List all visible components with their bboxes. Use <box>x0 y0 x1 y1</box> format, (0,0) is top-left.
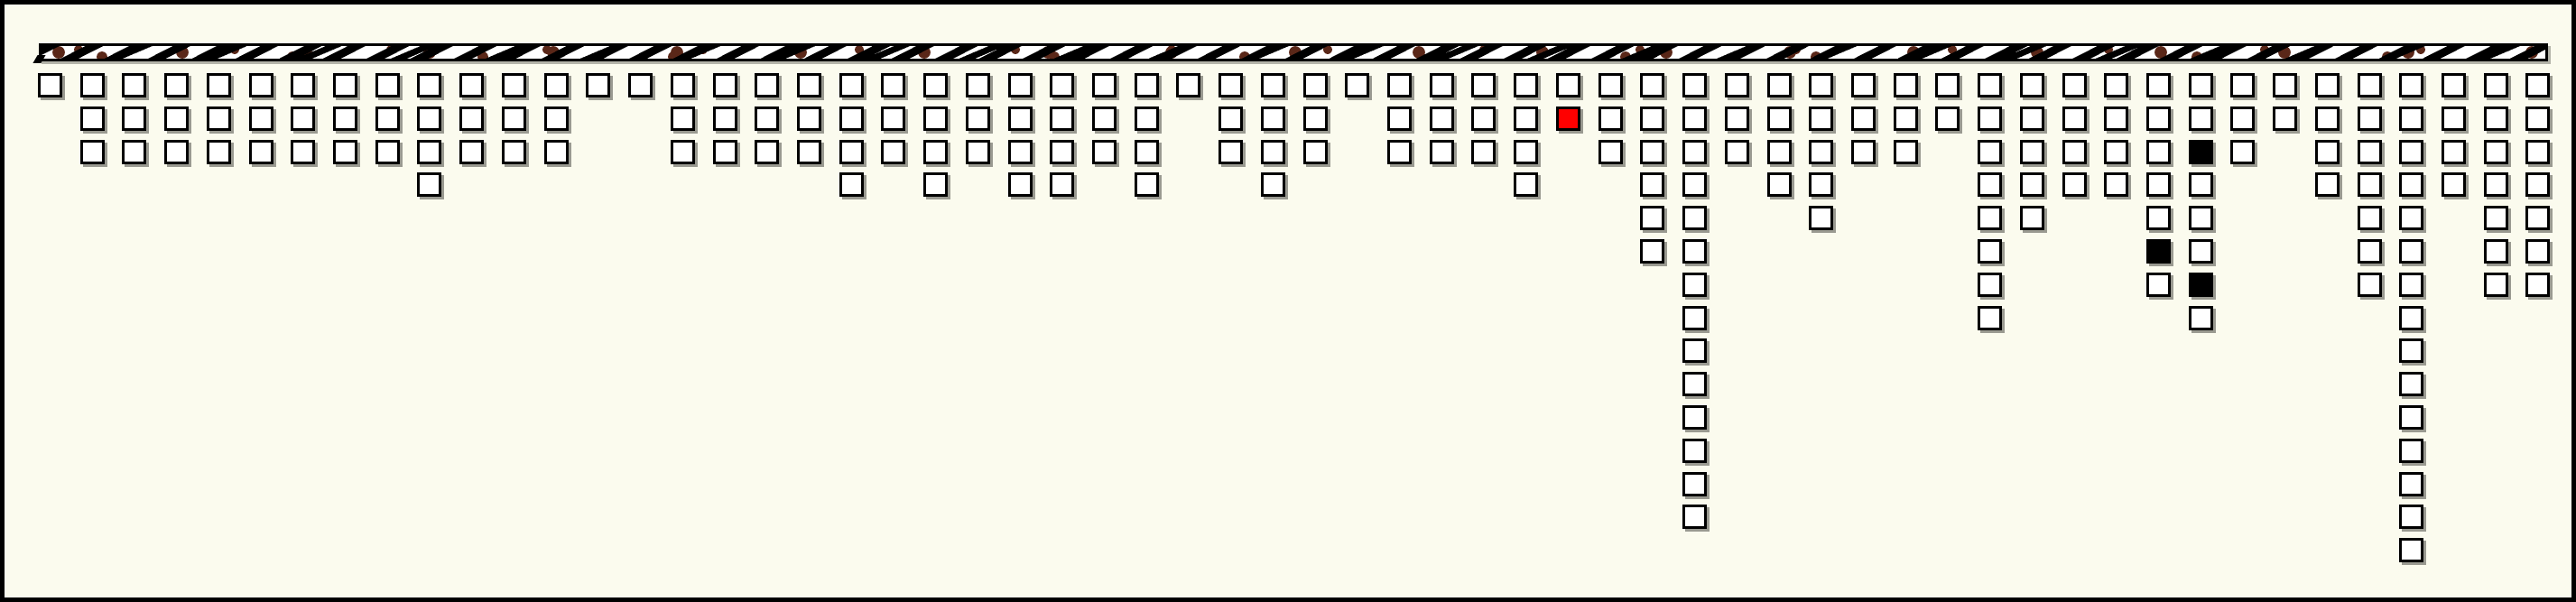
square-cell <box>1261 73 1285 97</box>
square-cell <box>164 140 189 164</box>
square-cell <box>1135 107 1159 131</box>
square-cell <box>1008 107 1033 131</box>
square-cell <box>544 140 569 164</box>
square-cell <box>164 73 189 97</box>
square-cell <box>2399 338 2423 363</box>
square-cell <box>1978 239 2002 264</box>
square-cell <box>2062 73 2087 97</box>
square-cell <box>2020 140 2044 164</box>
square-cell <box>1135 172 1159 197</box>
square-cell <box>2020 172 2044 197</box>
square-cell <box>2189 140 2213 164</box>
square-cell <box>249 73 273 97</box>
square-cell <box>1682 206 1707 230</box>
square-cell <box>1935 73 1960 97</box>
square-cell <box>1682 338 1707 363</box>
square-cell <box>2020 107 2044 131</box>
square-cell <box>1767 172 1792 197</box>
square-cell <box>207 73 231 97</box>
square-cell <box>2484 239 2508 264</box>
square-cell <box>2146 172 2171 197</box>
square-cell <box>1008 172 1033 197</box>
square-cell <box>2315 140 2340 164</box>
square-cell <box>1387 107 1412 131</box>
square-cell <box>2525 273 2550 297</box>
square-cell <box>1894 73 1918 97</box>
square-cell <box>1598 107 1623 131</box>
square-cell <box>375 140 400 164</box>
square-cell <box>1809 206 1833 230</box>
square-cell <box>1345 73 1369 97</box>
square-cell <box>1935 107 1960 131</box>
square-cell <box>2189 73 2213 97</box>
square-cell <box>2399 538 2423 562</box>
square-cell <box>1682 405 1707 430</box>
square-cell <box>2104 73 2128 97</box>
square-cell <box>1809 107 1833 131</box>
square-cell <box>628 73 653 97</box>
square-cell <box>1556 73 1580 97</box>
square-cell <box>1092 107 1117 131</box>
square-cell <box>2358 273 2382 297</box>
square-cell <box>1682 306 1707 330</box>
square-cell <box>417 172 441 197</box>
square-cell <box>1767 140 1792 164</box>
square-cell <box>2273 107 2297 131</box>
square-cell <box>1261 140 1285 164</box>
square-cell <box>2358 206 2382 230</box>
square-cell <box>2484 172 2508 197</box>
square-cell <box>2399 172 2423 197</box>
square-cell <box>1050 172 1074 197</box>
square-cell <box>80 140 105 164</box>
square-cell <box>1725 140 1749 164</box>
square-cell <box>2358 172 2382 197</box>
square-cell <box>713 140 737 164</box>
square-cell <box>2189 107 2213 131</box>
square-cell <box>2525 206 2550 230</box>
square-cell <box>2189 172 2213 197</box>
square-cell <box>2484 273 2508 297</box>
square-cell <box>1556 107 1580 131</box>
square-cell <box>2399 206 2423 230</box>
square-cell <box>1978 140 2002 164</box>
square-cell <box>1092 140 1117 164</box>
square-cell <box>1135 73 1159 97</box>
square-cell <box>797 107 821 131</box>
square-cell <box>2442 140 2466 164</box>
square-cell <box>1219 73 1243 97</box>
square-cell <box>2358 107 2382 131</box>
square-cell <box>2062 140 2087 164</box>
square-cell <box>2146 239 2171 264</box>
square-cell <box>459 73 484 97</box>
square-cell <box>1682 273 1707 297</box>
square-cell <box>881 107 905 131</box>
square-cell <box>1809 140 1833 164</box>
square-cell <box>1978 206 2002 230</box>
square-cell <box>1050 73 1074 97</box>
square-cell <box>502 73 526 97</box>
figure-canvas <box>0 0 2576 602</box>
square-cell <box>2315 73 2340 97</box>
square-cell <box>2358 140 2382 164</box>
square-cell <box>207 107 231 131</box>
square-cell <box>755 140 779 164</box>
square-cell <box>417 73 441 97</box>
square-cell <box>417 140 441 164</box>
square-cell <box>2062 107 2087 131</box>
square-cell <box>1219 140 1243 164</box>
square-cell <box>122 73 146 97</box>
square-cell <box>459 107 484 131</box>
square-cell <box>1640 73 1664 97</box>
square-cell <box>1682 505 1707 529</box>
square-cell <box>1598 140 1623 164</box>
square-cell <box>2399 140 2423 164</box>
square-cell <box>923 140 948 164</box>
square-cell <box>80 107 105 131</box>
square-cell <box>291 107 315 131</box>
square-cell <box>2484 107 2508 131</box>
square-cell <box>797 73 821 97</box>
square-cell <box>375 107 400 131</box>
square-cell <box>2358 73 2382 97</box>
square-cell <box>1725 73 1749 97</box>
square-cell <box>1682 472 1707 496</box>
square-cell <box>333 73 357 97</box>
square-cell <box>1682 107 1707 131</box>
square-cell <box>38 73 62 97</box>
square-cell <box>1430 107 1454 131</box>
square-cell <box>1050 140 1074 164</box>
square-cell <box>1598 73 1623 97</box>
square-cell <box>1471 107 1496 131</box>
square-cell <box>1514 107 1538 131</box>
square-cell <box>122 140 146 164</box>
square-cell <box>2189 206 2213 230</box>
square-cell <box>1682 73 1707 97</box>
square-cell <box>671 140 695 164</box>
square-cell <box>333 107 357 131</box>
square-cell <box>1682 372 1707 396</box>
square-cell <box>544 107 569 131</box>
square-cell <box>1851 73 1876 97</box>
square-cell <box>122 107 146 131</box>
square-cell <box>671 73 695 97</box>
square-cell <box>1682 239 1707 264</box>
square-cell <box>1135 140 1159 164</box>
square-cell <box>1978 273 2002 297</box>
square-cell <box>2230 140 2255 164</box>
square-cell <box>1851 107 1876 131</box>
square-cell <box>2442 172 2466 197</box>
square-cell <box>1978 107 2002 131</box>
square-cell <box>2399 439 2423 463</box>
square-cell <box>2358 239 2382 264</box>
square-cell <box>164 107 189 131</box>
square-cell <box>966 73 990 97</box>
square-cell <box>1514 140 1538 164</box>
square-cell <box>1092 73 1117 97</box>
square-cell <box>1767 73 1792 97</box>
square-cell <box>333 140 357 164</box>
square-cell <box>2484 73 2508 97</box>
square-cell <box>291 73 315 97</box>
square-cell <box>2020 73 2044 97</box>
square-cell <box>966 107 990 131</box>
square-cell <box>1894 107 1918 131</box>
square-cell <box>2525 140 2550 164</box>
square-cell <box>80 73 105 97</box>
square-cell <box>2442 73 2466 97</box>
square-cell <box>1303 140 1328 164</box>
square-cell <box>2399 73 2423 97</box>
square-cell <box>1640 239 1664 264</box>
square-cell <box>839 140 864 164</box>
square-cell <box>2189 306 2213 330</box>
square-cell <box>2146 140 2171 164</box>
square-cell <box>2399 273 2423 297</box>
square-cell <box>1978 172 2002 197</box>
square-cell <box>839 107 864 131</box>
square-cell <box>502 140 526 164</box>
square-cell <box>1978 306 2002 330</box>
square-cell <box>2399 239 2423 264</box>
square-cell <box>2525 73 2550 97</box>
square-cell <box>1008 140 1033 164</box>
square-cell <box>2189 273 2213 297</box>
square-cell <box>544 73 569 97</box>
square-cell <box>1471 73 1496 97</box>
square-cell <box>1809 172 1833 197</box>
square-cell <box>2442 107 2466 131</box>
square-cell <box>2273 73 2297 97</box>
square-cell <box>713 73 737 97</box>
square-cell <box>2189 239 2213 264</box>
square-cell <box>881 140 905 164</box>
square-cell <box>1008 73 1033 97</box>
square-cell <box>1176 73 1200 97</box>
square-cell <box>2399 372 2423 396</box>
square-cell <box>2399 472 2423 496</box>
square-cell <box>2104 140 2128 164</box>
square-cell <box>586 73 610 97</box>
square-cell <box>1430 73 1454 97</box>
square-cell <box>2399 306 2423 330</box>
square-cell <box>966 140 990 164</box>
square-cell <box>1640 206 1664 230</box>
square-cell <box>2020 206 2044 230</box>
square-cell <box>2230 107 2255 131</box>
square-cell <box>2104 107 2128 131</box>
square-cell <box>2399 107 2423 131</box>
square-cell <box>1767 107 1792 131</box>
square-cell <box>2146 107 2171 131</box>
square-cell <box>1640 107 1664 131</box>
square-cell <box>797 140 821 164</box>
square-cell <box>881 73 905 97</box>
square-cell <box>923 172 948 197</box>
square-cell <box>1809 73 1833 97</box>
square-cell <box>671 107 695 131</box>
square-cell <box>1514 73 1538 97</box>
square-cell <box>2525 107 2550 131</box>
square-cell <box>1894 140 1918 164</box>
square-cell <box>2399 405 2423 430</box>
square-cell <box>923 107 948 131</box>
square-cell <box>291 140 315 164</box>
square-cell <box>713 107 737 131</box>
square-cell <box>2230 73 2255 97</box>
square-cell <box>1261 107 1285 131</box>
square-cell <box>1303 107 1328 131</box>
square-cell <box>839 73 864 97</box>
square-cell <box>2146 206 2171 230</box>
square-cell <box>459 140 484 164</box>
square-cell <box>2104 172 2128 197</box>
square-cell <box>2315 172 2340 197</box>
square-cell <box>923 73 948 97</box>
square-cell <box>1682 439 1707 463</box>
square-cell <box>2146 73 2171 97</box>
square-cell <box>1640 140 1664 164</box>
square-cell <box>2484 206 2508 230</box>
square-cell <box>2315 107 2340 131</box>
square-cell <box>417 107 441 131</box>
square-cell <box>1050 107 1074 131</box>
square-cell <box>207 140 231 164</box>
square-cell <box>502 107 526 131</box>
square-cell <box>2146 273 2171 297</box>
square-cell <box>1978 73 2002 97</box>
square-cell <box>1514 172 1538 197</box>
square-cell <box>2062 172 2087 197</box>
square-cell <box>1387 73 1412 97</box>
square-cell <box>2525 239 2550 264</box>
square-cell <box>1261 172 1285 197</box>
square-cell <box>1430 140 1454 164</box>
square-cell <box>249 107 273 131</box>
square-cell <box>755 107 779 131</box>
square-cell <box>1725 107 1749 131</box>
square-cell <box>2525 172 2550 197</box>
square-cell <box>1682 172 1707 197</box>
square-cell <box>839 172 864 197</box>
square-cell <box>755 73 779 97</box>
square-cell <box>1851 140 1876 164</box>
square-cell <box>1682 140 1707 164</box>
square-cell <box>1640 172 1664 197</box>
square-cell <box>1303 73 1328 97</box>
square-cell <box>1219 107 1243 131</box>
square-cell <box>2484 140 2508 164</box>
square-cell <box>1387 140 1412 164</box>
square-cell <box>2399 505 2423 529</box>
square-cell <box>1471 140 1496 164</box>
hatched-ideogram-bar <box>39 43 2548 61</box>
square-cell <box>375 73 400 97</box>
square-cell <box>249 140 273 164</box>
